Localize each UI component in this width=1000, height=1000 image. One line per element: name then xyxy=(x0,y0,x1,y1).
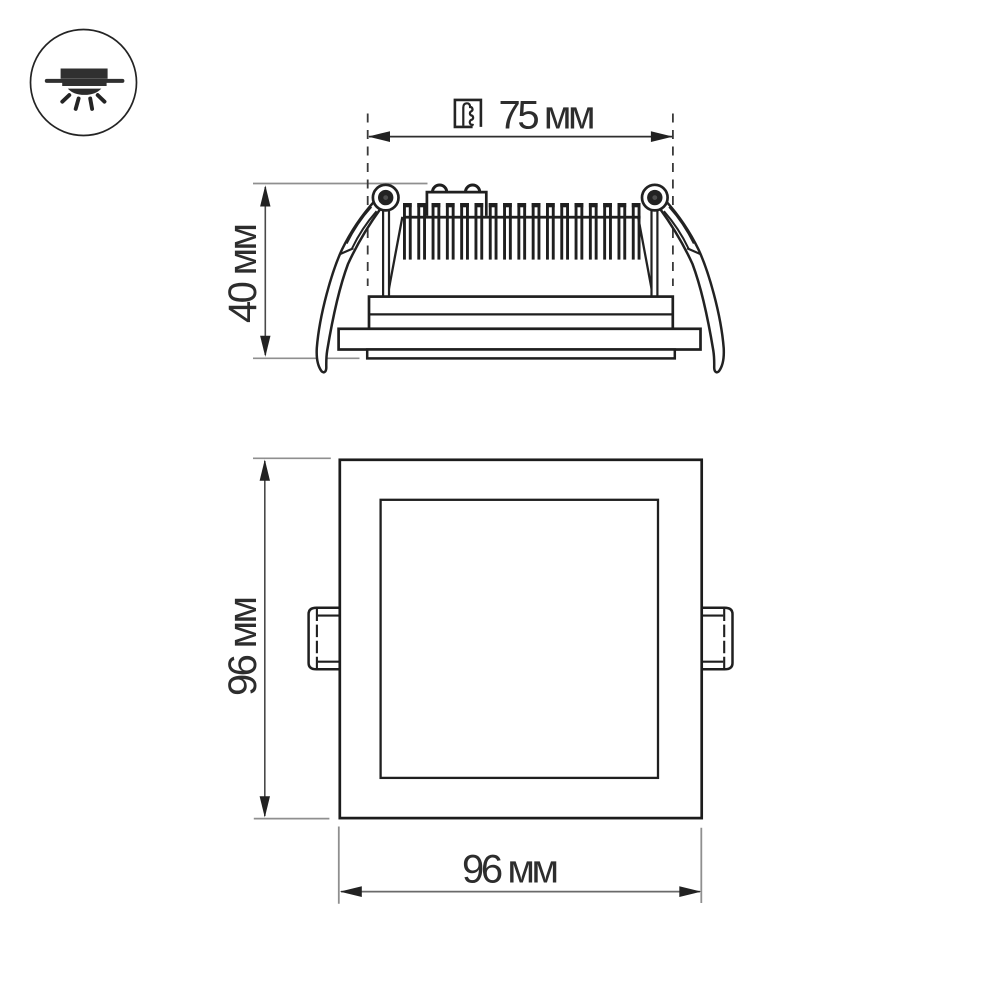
svg-text:40 мм: 40 мм xyxy=(221,223,265,323)
svg-text:75 мм: 75 мм xyxy=(499,94,596,138)
svg-text:96 мм: 96 мм xyxy=(221,596,265,696)
svg-text:96 мм: 96 мм xyxy=(462,848,559,892)
